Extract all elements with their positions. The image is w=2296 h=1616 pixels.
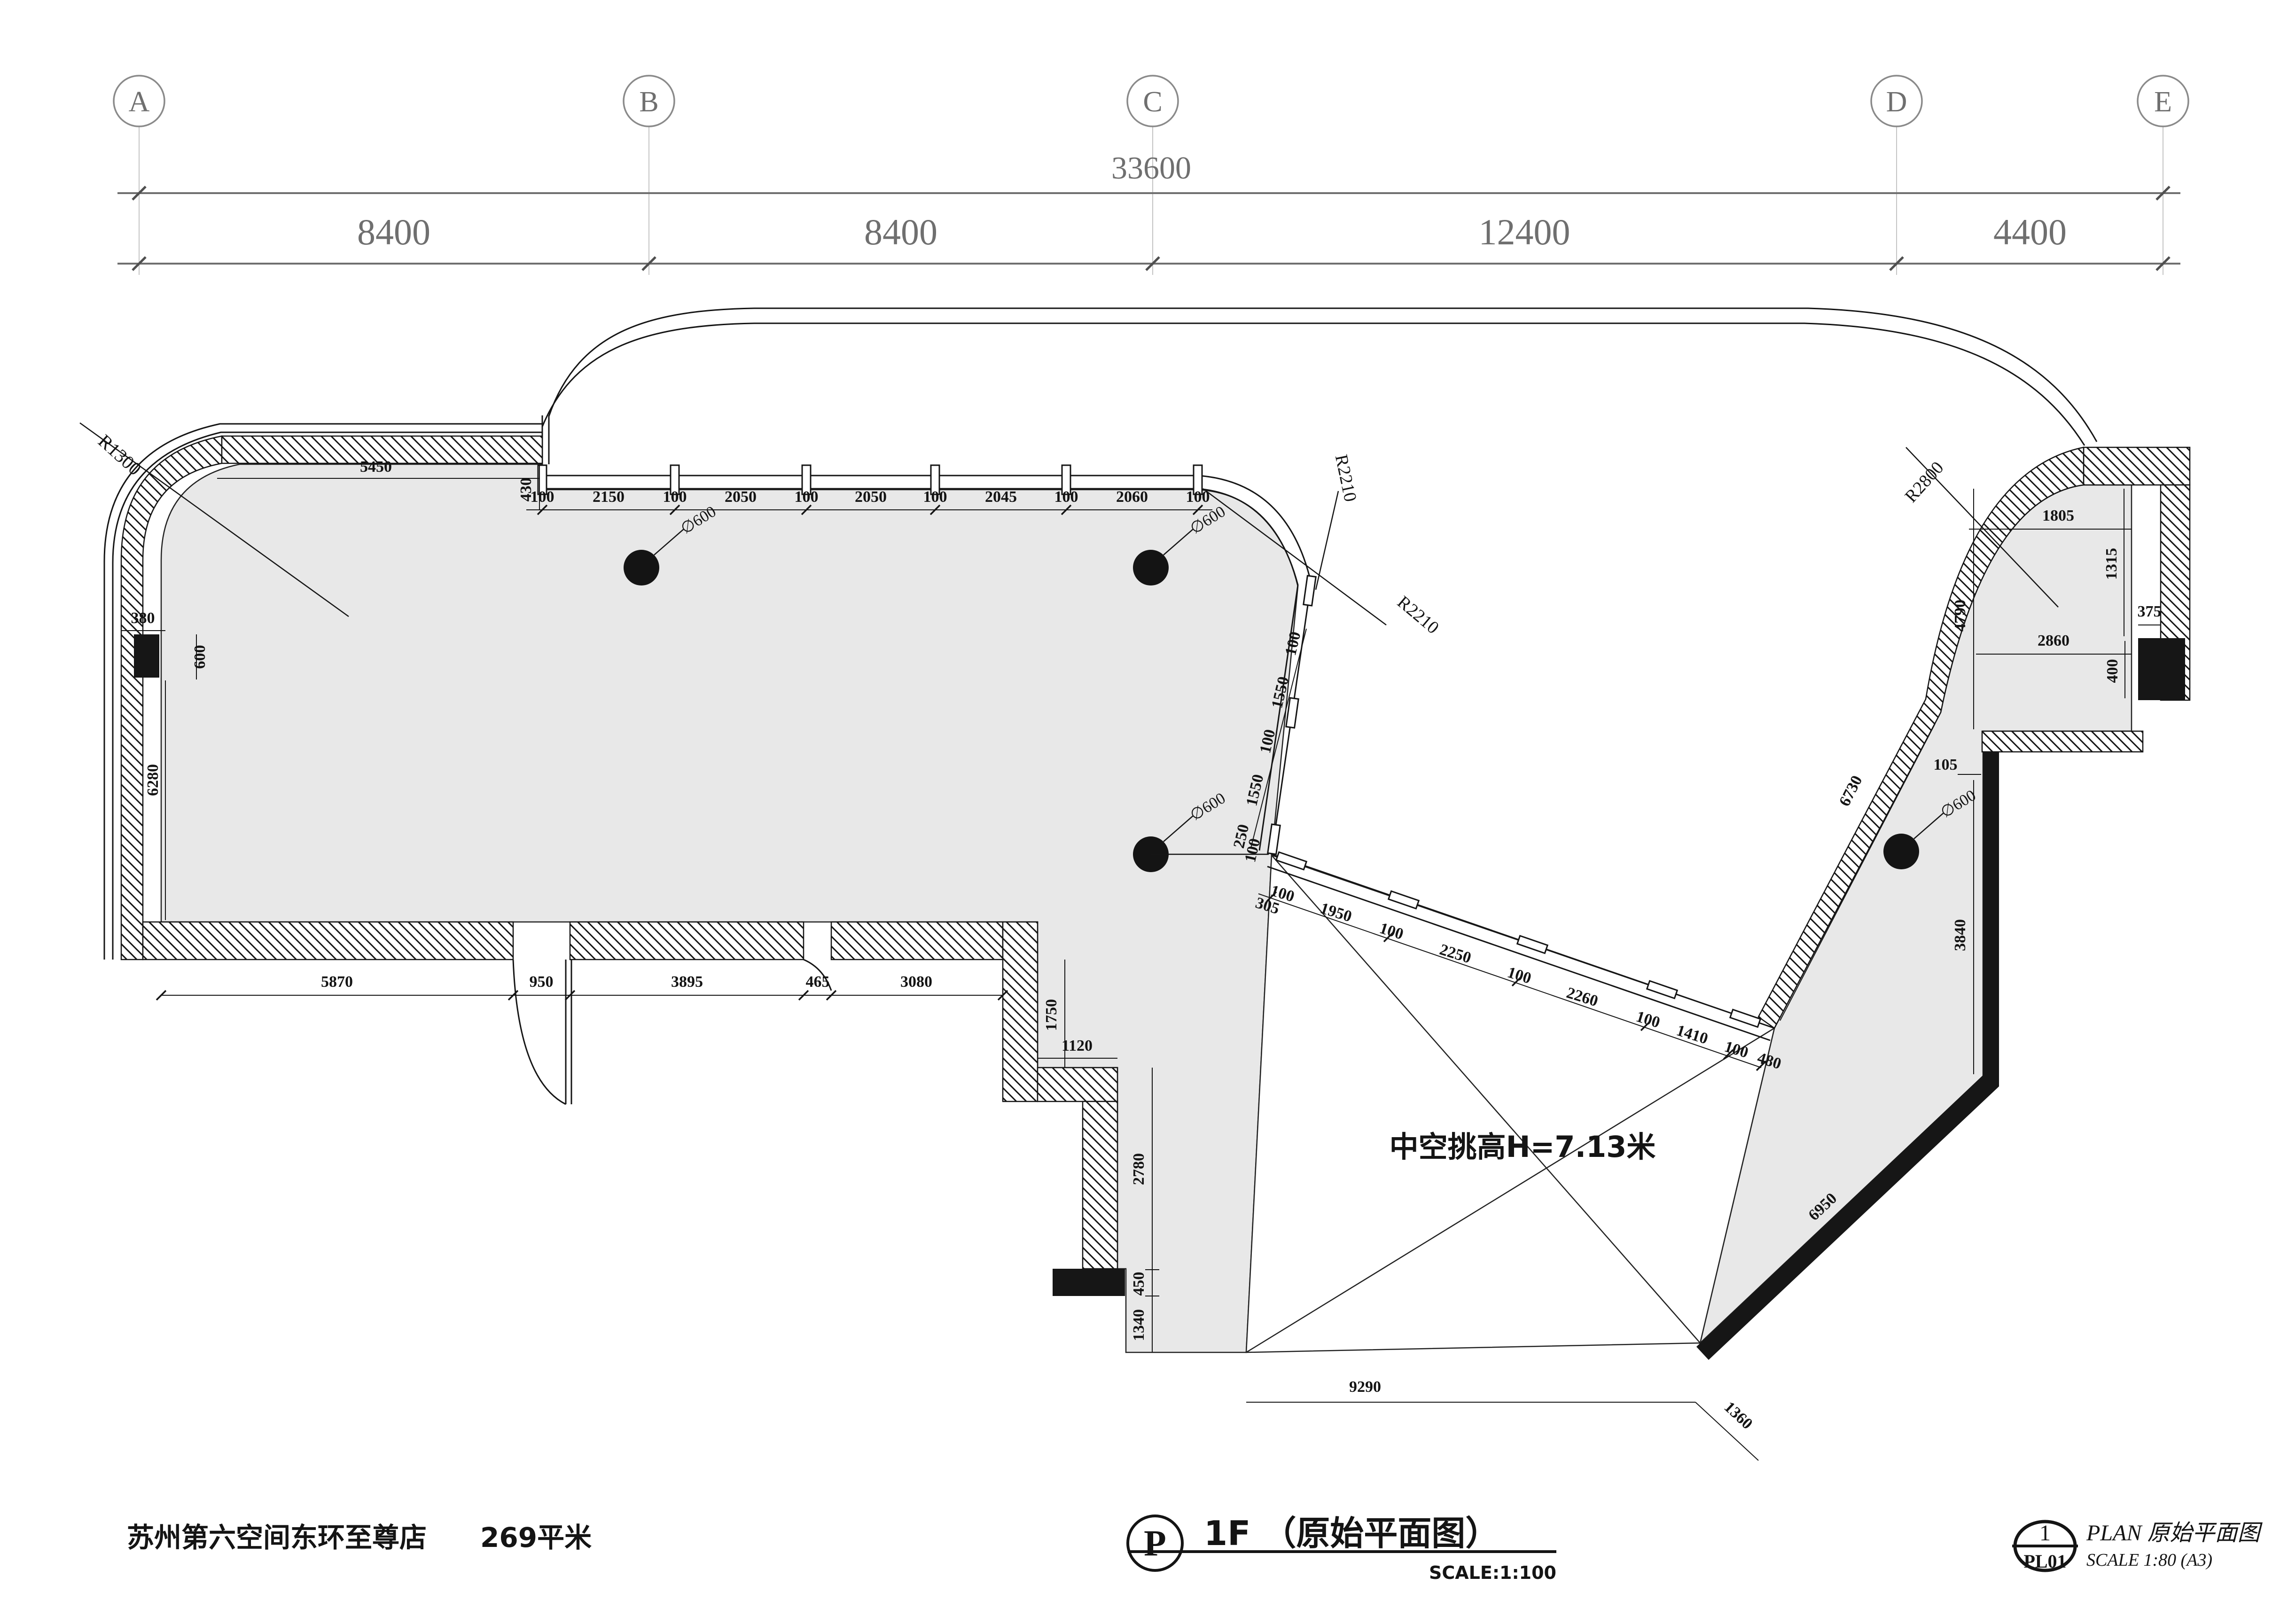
dim: 380 <box>131 609 155 627</box>
dim: 450 <box>1130 1272 1148 1296</box>
dim: 2050 <box>855 488 887 506</box>
wall-right-stub <box>1982 731 2143 752</box>
grid-bubble-e: E <box>2154 86 2172 118</box>
dim: 5870 <box>321 973 353 991</box>
dim: 2045 <box>985 488 1017 506</box>
ref-title: PLAN 原始平面图 <box>2086 1521 2263 1546</box>
grid-bubble-c: C <box>1143 86 1162 118</box>
dim: 100 <box>531 488 554 506</box>
wall-right-top <box>2084 447 2190 485</box>
dim: 100 <box>1186 488 1210 506</box>
radius-r1300: R1300 <box>94 430 145 480</box>
dim: 375 <box>2138 603 2162 620</box>
dim: 1750 <box>1043 999 1060 1031</box>
dim: 5450 <box>360 458 392 476</box>
column-round <box>1133 550 1169 586</box>
wall-step-h1 <box>1038 1068 1117 1101</box>
project-title: 苏州第六空间东环至尊店 <box>127 1522 427 1554</box>
column-round <box>1883 834 1919 869</box>
dim: 1315 <box>2103 548 2120 580</box>
floor-left <box>161 464 1298 1352</box>
column-round <box>624 550 659 586</box>
column-square-right <box>2138 638 2185 700</box>
dim: 465 <box>806 973 830 991</box>
dim: 1360 <box>1721 1398 1756 1433</box>
dim: 9290 <box>1349 1378 1381 1396</box>
radius-r2210-b: R2210 <box>1393 592 1443 638</box>
dim: 3080 <box>900 973 932 991</box>
grid-labels: A B C D E 33600 8400 8400 12400 4400 <box>129 86 2172 252</box>
wall-bottom-1 <box>143 922 513 960</box>
floor-right <box>1700 485 2132 1343</box>
dim: 100 <box>923 488 947 506</box>
radius-r2800: R2800 <box>1901 458 1948 506</box>
dim: 100 <box>1054 488 1078 506</box>
dim-span-cd: 12400 <box>1479 211 1570 252</box>
ref-scale: SCALE 1:80 (A3) <box>2086 1550 2212 1570</box>
column-square-left <box>134 634 159 678</box>
dim-span-ab: 8400 <box>357 211 430 252</box>
radius-r2210-a: R2210 <box>1331 453 1360 504</box>
floor-plan-canvas: A B C D E 33600 8400 8400 12400 4400 中空挑… <box>0 0 2296 1616</box>
project-area: 269平米 <box>480 1522 592 1554</box>
wall-step-v1 <box>1003 922 1038 1101</box>
plan-scale: SCALE:1:100 <box>1429 1562 1556 1583</box>
dim: 2780 <box>1130 1153 1148 1185</box>
dim: 600 <box>191 645 209 669</box>
dim: 6730 <box>1836 773 1866 809</box>
dim: 2150 <box>593 488 625 506</box>
dim: 400 <box>2104 659 2121 683</box>
void-label: 中空挑高H=7.13米 <box>1390 1130 1656 1164</box>
ref-code: PL01 <box>2023 1551 2066 1572</box>
dim: 1340 <box>1130 1309 1148 1341</box>
titleblock-main: P 1F （原始平面图） SCALE:1:100 <box>1128 1514 1556 1583</box>
dim-span-de: 4400 <box>1993 211 2067 252</box>
wall-bottom-2 <box>570 922 804 960</box>
dim: 1805 <box>2042 507 2074 524</box>
drawing-sheet: A B C D E 33600 8400 8400 12400 4400 中空挑… <box>0 0 2296 1616</box>
dim: 3840 <box>1952 919 1969 951</box>
grid-bubble-a: A <box>129 86 150 118</box>
dim: 6280 <box>144 764 162 796</box>
titleblock-left: 苏州第六空间东环至尊店 269平米 <box>127 1522 592 1554</box>
dim: 100 <box>663 488 687 506</box>
dim: 4790 <box>1952 600 1969 632</box>
ref-number: 1 <box>2039 1521 2051 1546</box>
wall-right-lower <box>1983 752 1999 1086</box>
dim-total: 33600 <box>1111 150 1191 186</box>
dim: 3895 <box>671 973 703 991</box>
dim: 1120 <box>1062 1037 1093 1054</box>
dim: 950 <box>530 973 554 991</box>
dim: 2860 <box>2038 632 2070 649</box>
dim: 100 <box>795 488 819 506</box>
ledge-solid <box>1053 1269 1125 1296</box>
grid-bubble-d: D <box>1886 86 1907 118</box>
grid-bubble-b: B <box>639 86 658 118</box>
atrium-void: 中空挑高H=7.13米 <box>1246 855 1774 1352</box>
dim: 2060 <box>1116 488 1148 506</box>
dim: 2050 <box>725 488 757 506</box>
wall-step-v2 <box>1083 1101 1117 1269</box>
dim-span-bc: 8400 <box>864 211 937 252</box>
plan-title: 1F （原始平面图） <box>1204 1514 1499 1553</box>
dim: 105 <box>1934 756 1958 773</box>
titleblock-ref: 1 PL01 PLAN 原始平面图 SCALE 1:80 (A3) <box>2012 1521 2263 1572</box>
plan-bubble-label: P <box>1144 1522 1166 1563</box>
wall-bottom-3 <box>831 922 1003 960</box>
